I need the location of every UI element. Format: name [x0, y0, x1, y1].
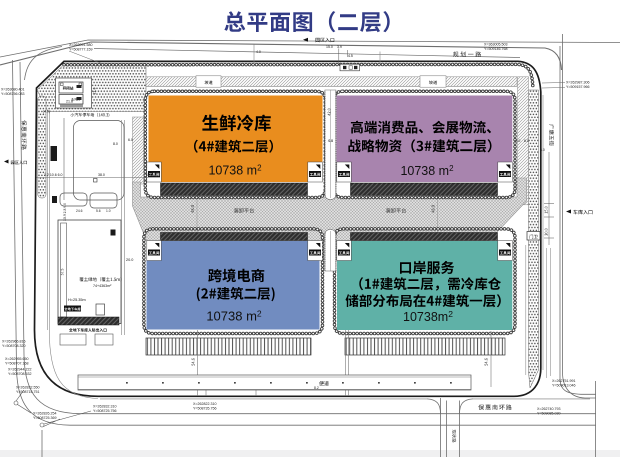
svg-text:Y=508707.168: Y=508707.168	[5, 361, 28, 365]
svg-text:3.9: 3.9	[337, 45, 342, 49]
svg-text:Y=508708.532: Y=508708.532	[8, 372, 31, 376]
svg-text:Y=509146.768: Y=509146.768	[484, 47, 507, 51]
svg-text:H=25.35m: H=25.35m	[68, 298, 86, 302]
svg-text:Y=508735.756: Y=508735.756	[193, 406, 216, 410]
svg-text:Y=508725.756: Y=508725.756	[93, 409, 116, 413]
svg-text:10738 m2: 10738 m2	[400, 164, 454, 178]
svg-text:Y=508777.159: Y=508777.159	[69, 47, 92, 51]
svg-text:21.8: 21.8	[66, 100, 73, 104]
svg-text:10738 m2: 10738 m2	[208, 164, 262, 178]
svg-text:Y=508715.751: Y=508715.751	[16, 390, 39, 394]
svg-text:Y=509085.030: Y=509085.030	[537, 411, 560, 415]
svg-text:38.0: 38.0	[98, 173, 105, 177]
svg-text:8.0: 8.0	[113, 142, 118, 146]
svg-text:Y=509157.966: Y=509157.966	[566, 85, 589, 89]
svg-text:74+4363m²: 74+4363m²	[93, 284, 112, 288]
svg-text:3.0: 3.0	[540, 148, 545, 152]
svg-text:4.0: 4.0	[256, 50, 261, 54]
svg-text:8.0: 8.0	[516, 139, 521, 143]
svg-text:20.0: 20.0	[126, 258, 133, 262]
svg-text:7.2 10.6 6.0: 7.2 10.6 6.0	[44, 173, 63, 177]
svg-text:Y=509013.046: Y=509013.046	[552, 383, 575, 387]
svg-text:Y=508725.369: Y=508725.369	[33, 416, 56, 420]
svg-text:Y=508756.083: Y=508756.083	[1, 92, 24, 96]
svg-text:4.5: 4.5	[348, 54, 353, 58]
svg-text:5.6: 5.6	[96, 209, 101, 213]
svg-text:1 48.0: 1 48.0	[146, 173, 156, 177]
svg-text:6.0: 6.0	[524, 139, 529, 143]
svg-text:1.0: 1.0	[106, 209, 111, 213]
svg-text:8.2: 8.2	[314, 386, 319, 390]
svg-text:6.0: 6.0	[128, 138, 133, 142]
svg-text:10738m2: 10738m2	[403, 309, 453, 324]
svg-text:Y=508708.320: Y=508708.320	[2, 344, 25, 348]
svg-text:15.0: 15.0	[326, 45, 333, 49]
svg-text:(4.0): (4.0)	[43, 110, 50, 114]
svg-text:10738 m2: 10738 m2	[206, 309, 262, 324]
svg-text:24.6: 24.6	[76, 209, 83, 213]
